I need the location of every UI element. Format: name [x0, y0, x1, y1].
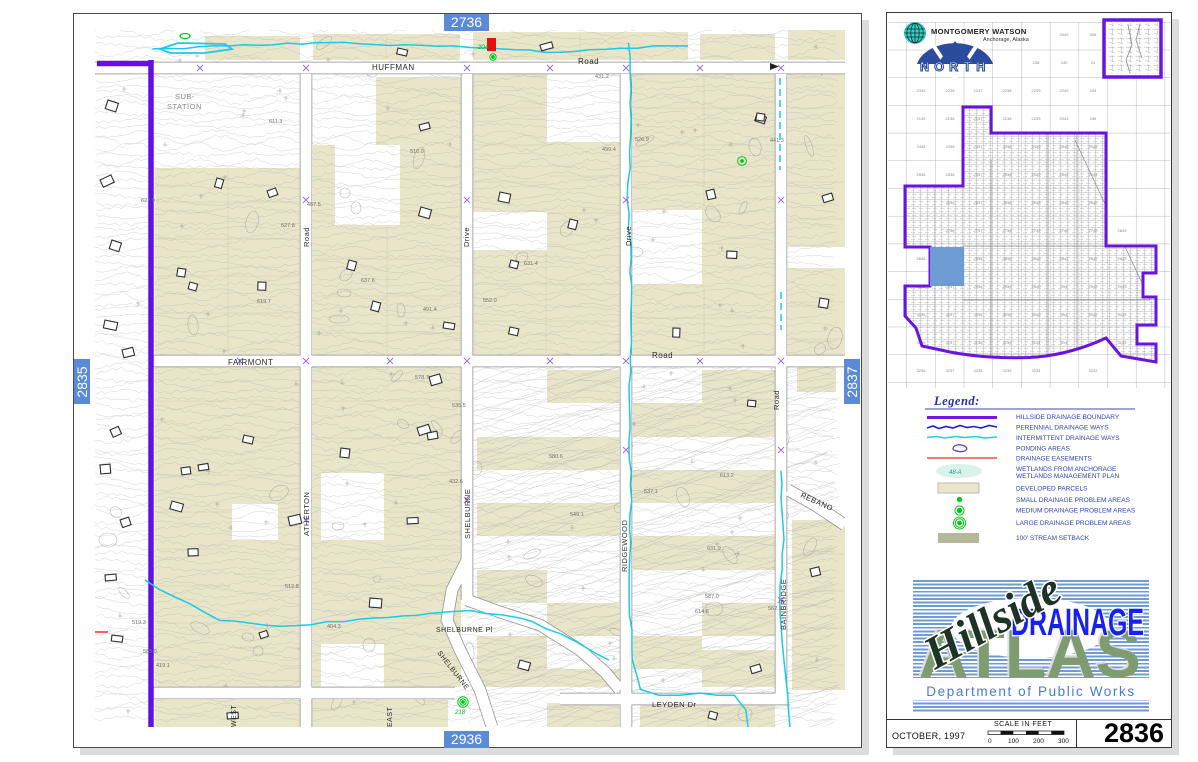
svg-text:238: 238 [1033, 60, 1040, 65]
svg-text:2043: 2043 [1060, 116, 1070, 121]
svg-text:2040: 2040 [1060, 32, 1070, 37]
svg-text:2135: 2135 [917, 116, 927, 121]
svg-text:2438: 2438 [917, 144, 927, 149]
svg-text:3237: 3237 [946, 368, 956, 373]
svg-text:100: 100 [1008, 738, 1019, 745]
svg-text:HILLSIDE DRAINAGE BOUNDARY: HILLSIDE DRAINAGE BOUNDARY [1016, 414, 1120, 421]
svg-text:3242: 3242 [1089, 368, 1099, 373]
svg-text:240: 240 [1061, 60, 1068, 65]
svg-text:3236: 3236 [917, 368, 927, 373]
svg-text:WETLANDS MANAGEMENT PLAN: WETLANDS MANAGEMENT PLAN [1016, 473, 1119, 480]
svg-text:306: 306 [1090, 32, 1097, 37]
svg-text:MEDIUM DRAINAGE PROBLEM ARE: MEDIUM DRAINAGE PROBLEM AREAS [1016, 508, 1136, 515]
svg-text:24: 24 [1091, 60, 1096, 65]
svg-text:2240: 2240 [1060, 88, 1070, 93]
svg-text:48-A: 48-A [949, 470, 962, 476]
svg-text:2836: 2836 [917, 256, 927, 261]
svg-text:256: 256 [1090, 116, 1097, 121]
svg-text:0: 0 [988, 738, 992, 745]
svg-text:Legend:: Legend: [933, 394, 980, 408]
svg-text:NORTH: NORTH [920, 60, 990, 74]
svg-text:200: 200 [1033, 738, 1044, 745]
svg-text:2335: 2335 [917, 88, 927, 93]
svg-text:2535: 2535 [917, 172, 927, 177]
svg-text:2138: 2138 [1003, 116, 1013, 121]
svg-text:INTERMITTENT DRAINAGE WAYS: INTERMITTENT DRAINAGE WAYS [1016, 435, 1120, 442]
svg-text:MONTGOMERY WATSON: MONTGOMERY WATSON [931, 27, 1027, 36]
svg-text:LARGE DRAINAGE PROBLEM AREA: LARGE DRAINAGE PROBLEM AREAS [1016, 520, 1132, 527]
svg-text:2136: 2136 [946, 116, 956, 121]
svg-text:3239: 3239 [1003, 368, 1013, 373]
svg-text:PONDING AREAS: PONDING AREAS [1016, 446, 1070, 453]
svg-text:3234: 3234 [1032, 368, 1042, 373]
svg-text:DRAINAGE EASEMENTS: DRAINAGE EASEMENTS [1016, 456, 1093, 463]
svg-text:DEVELOPED PARCELS: DEVELOPED PARCELS [1016, 486, 1088, 493]
svg-text:3238: 3238 [974, 368, 984, 373]
svg-text:Department of Public Works: Department of Public Works [926, 684, 1135, 699]
svg-text:2237: 2237 [974, 88, 984, 93]
svg-text:2236: 2236 [946, 88, 956, 93]
svg-text:2239: 2239 [1032, 116, 1042, 121]
svg-text:2238: 2238 [1003, 88, 1013, 93]
svg-text:Anchorage, Alaska: Anchorage, Alaska [983, 37, 1030, 43]
svg-text:254: 254 [1090, 88, 1097, 93]
svg-text:SMALL DRAINAGE PROBLEM AREA: SMALL DRAINAGE PROBLEM AREAS [1016, 497, 1131, 504]
svg-text:PERENNIAL DRAINAGE WAYS: PERENNIAL DRAINAGE WAYS [1016, 425, 1109, 432]
svg-text:WETLANDS FROM ANCHORAGE: WETLANDS FROM ANCHORAGE [1016, 466, 1117, 473]
svg-text:2436: 2436 [946, 144, 956, 149]
svg-text:2843: 2843 [1118, 228, 1128, 233]
svg-text:300: 300 [1058, 738, 1069, 745]
svg-text:2536: 2536 [946, 172, 956, 177]
svg-text:2239: 2239 [1032, 88, 1042, 93]
